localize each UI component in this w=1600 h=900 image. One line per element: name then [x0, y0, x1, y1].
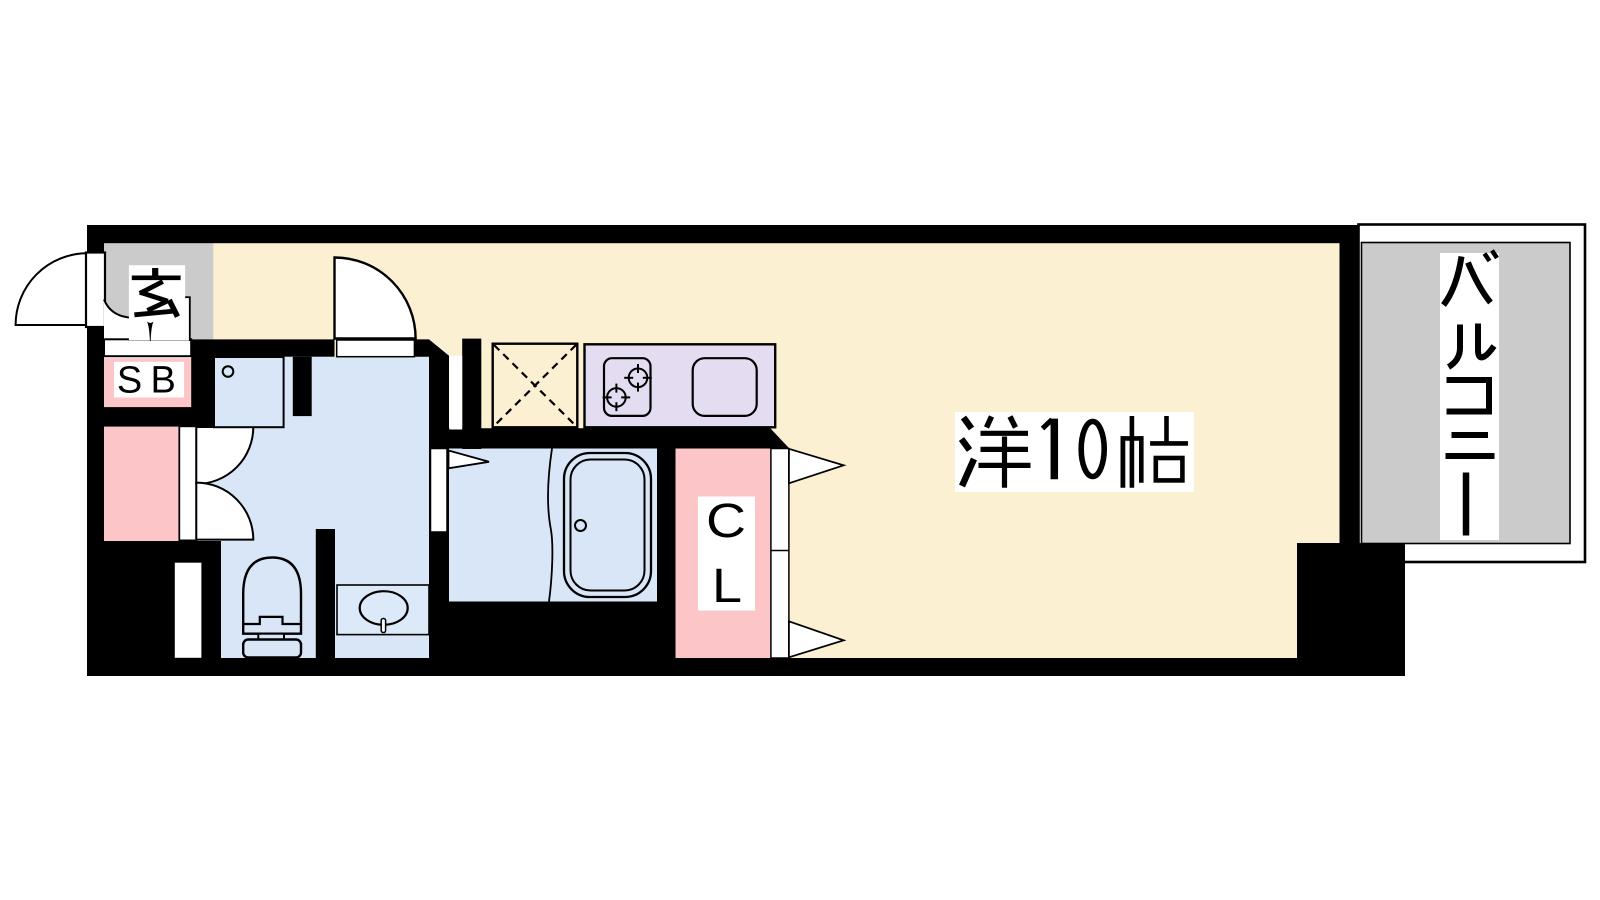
svg-text:C: C — [706, 495, 746, 548]
svg-text:L: L — [712, 560, 742, 613]
svg-text:B: B — [151, 360, 176, 402]
svg-text:S: S — [117, 360, 142, 402]
